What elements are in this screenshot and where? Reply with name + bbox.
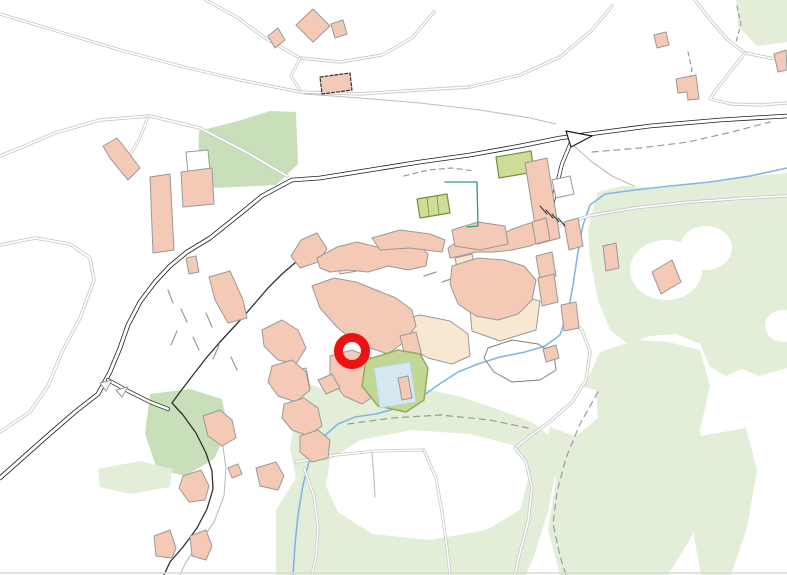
green-cutout xyxy=(680,226,732,270)
dash-mark xyxy=(193,337,199,350)
path xyxy=(470,6,612,87)
building xyxy=(190,530,212,560)
building xyxy=(209,271,247,323)
fence-line xyxy=(445,182,478,227)
loop-path xyxy=(0,238,94,432)
green-right-finger xyxy=(691,428,757,575)
path xyxy=(0,14,470,94)
green-corner xyxy=(736,0,787,46)
dash-mark xyxy=(424,272,436,276)
building xyxy=(774,50,787,72)
building-hatched xyxy=(320,73,352,94)
map-canvas[interactable] xyxy=(0,0,787,575)
building xyxy=(561,302,579,331)
building xyxy=(154,530,176,558)
building xyxy=(103,138,140,180)
dash-mark xyxy=(171,331,177,345)
path xyxy=(0,14,470,94)
dashed-track xyxy=(592,122,770,152)
building xyxy=(268,28,285,48)
dash-mark xyxy=(181,309,187,322)
sports-field xyxy=(198,111,298,188)
building xyxy=(676,75,699,100)
building xyxy=(186,256,199,274)
building xyxy=(268,360,310,402)
dash-mark xyxy=(231,357,237,370)
building-block xyxy=(452,222,508,250)
building xyxy=(150,174,174,253)
green-bottom-right xyxy=(545,340,710,575)
dash-mark xyxy=(168,290,173,303)
building xyxy=(296,9,330,42)
building xyxy=(654,32,669,48)
path-line xyxy=(305,94,556,124)
building xyxy=(256,462,284,490)
building xyxy=(228,464,242,478)
path xyxy=(470,6,612,87)
building xyxy=(538,274,558,306)
path-line xyxy=(574,146,634,186)
building xyxy=(181,168,214,207)
building xyxy=(262,320,306,364)
building xyxy=(331,20,347,38)
building xyxy=(564,218,583,250)
path xyxy=(128,117,148,158)
loop-path xyxy=(0,238,94,432)
building-outline xyxy=(552,176,574,198)
dash-mark xyxy=(206,313,212,327)
building xyxy=(603,243,619,271)
greenhouse xyxy=(417,194,450,218)
dashed-track xyxy=(404,168,474,176)
town-plan-map xyxy=(0,0,787,575)
building xyxy=(543,345,559,362)
